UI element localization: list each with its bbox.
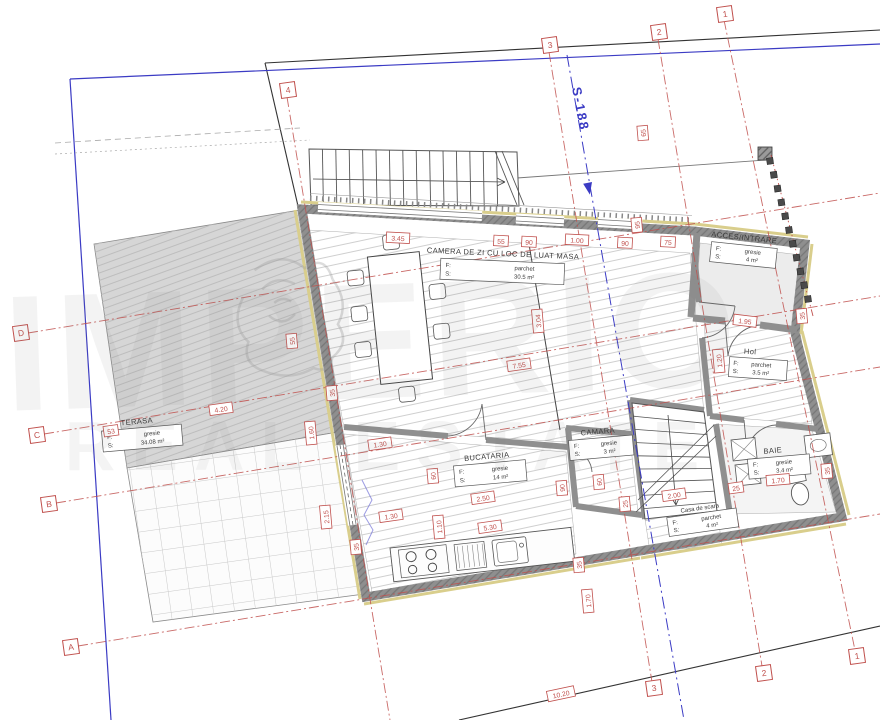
area-value: 4 m² bbox=[746, 257, 759, 264]
svg-text:25: 25 bbox=[622, 500, 630, 508]
grid-bubble-3: 3 bbox=[646, 680, 663, 697]
grid-bubble-1: 1 bbox=[849, 648, 866, 665]
svg-text:1.70: 1.70 bbox=[771, 477, 785, 485]
dimension-label: 1.10 bbox=[433, 515, 445, 539]
fence-post bbox=[793, 254, 800, 261]
retaining-wall-line bbox=[517, 160, 766, 178]
grid-bubble-1: 1 bbox=[717, 6, 734, 23]
dimension-label: 35 bbox=[350, 539, 362, 554]
survey-arrow-icon bbox=[583, 182, 594, 195]
svg-text:95: 95 bbox=[634, 221, 642, 229]
grid-bubble-B: B bbox=[41, 496, 58, 513]
svg-text:3.45: 3.45 bbox=[391, 235, 405, 243]
fence-post bbox=[778, 199, 785, 206]
grid-bubble-A: A bbox=[63, 639, 80, 656]
floor-label: F: bbox=[753, 462, 759, 468]
fence-post bbox=[804, 295, 811, 302]
grid-bubble-3: 3 bbox=[542, 37, 559, 54]
fence-post bbox=[774, 185, 781, 192]
svg-text:1.70: 1.70 bbox=[585, 594, 593, 608]
property-line-blue-top bbox=[70, 44, 880, 79]
dimension-label: 35 bbox=[821, 463, 833, 478]
watermark-tagline: REAL ESTATE bbox=[65, 407, 715, 485]
survey-label: S-188 bbox=[569, 86, 592, 133]
svg-text:65: 65 bbox=[640, 129, 648, 137]
dimension-label: 35 bbox=[573, 557, 585, 572]
construction-line bbox=[55, 128, 300, 143]
room-title: Hol bbox=[744, 347, 757, 357]
dimension-label: 2.15 bbox=[320, 505, 332, 529]
dimension-label: 95 bbox=[631, 217, 643, 232]
site-boundary-top bbox=[265, 30, 880, 63]
construction-line bbox=[55, 140, 310, 154]
area-value: 3.5 m² bbox=[752, 370, 769, 377]
fence-post bbox=[785, 226, 792, 233]
dimension-label: 3.45 bbox=[386, 232, 410, 244]
dimension-label: 25 bbox=[619, 496, 631, 511]
dimension-label: 1.70 bbox=[766, 474, 790, 486]
grid-bubble-2: 2 bbox=[756, 665, 773, 682]
fence-post bbox=[766, 157, 773, 164]
dimension-label: 65 bbox=[637, 125, 649, 140]
dimension-label: 25 bbox=[728, 482, 744, 494]
fence-post bbox=[801, 282, 808, 289]
fence-post bbox=[789, 240, 796, 247]
dimension-label: 1.70 bbox=[582, 589, 594, 613]
svg-text:35: 35 bbox=[576, 561, 584, 569]
svg-text:35: 35 bbox=[353, 543, 361, 551]
washing-machine bbox=[731, 437, 757, 460]
svg-text:25: 25 bbox=[732, 485, 741, 493]
dimension-label: 35 bbox=[796, 308, 808, 323]
svg-text:35: 35 bbox=[799, 312, 807, 320]
floor-plan-document: S-188 CAMERA DE ZI CU LOC DE LUAT MASA F… bbox=[0, 0, 880, 720]
fence-post bbox=[770, 171, 777, 178]
fence-post bbox=[797, 268, 804, 275]
svg-text:2.15: 2.15 bbox=[323, 510, 331, 524]
svg-text:1.10: 1.10 bbox=[436, 520, 444, 534]
room-title: BAIE bbox=[763, 445, 782, 456]
area-label: S: bbox=[753, 470, 760, 477]
grid-bubble-2: 2 bbox=[651, 24, 668, 41]
watermark: IMPERIO REAL ESTATE bbox=[1, 236, 746, 485]
fence-post bbox=[782, 213, 789, 220]
floor-plan-canvas: S-188 CAMERA DE ZI CU LOC DE LUAT MASA F… bbox=[0, 0, 880, 720]
svg-text:35: 35 bbox=[824, 467, 832, 475]
grid-bubble-4: 4 bbox=[280, 82, 297, 99]
dimension-label: 10.20 bbox=[546, 686, 575, 702]
